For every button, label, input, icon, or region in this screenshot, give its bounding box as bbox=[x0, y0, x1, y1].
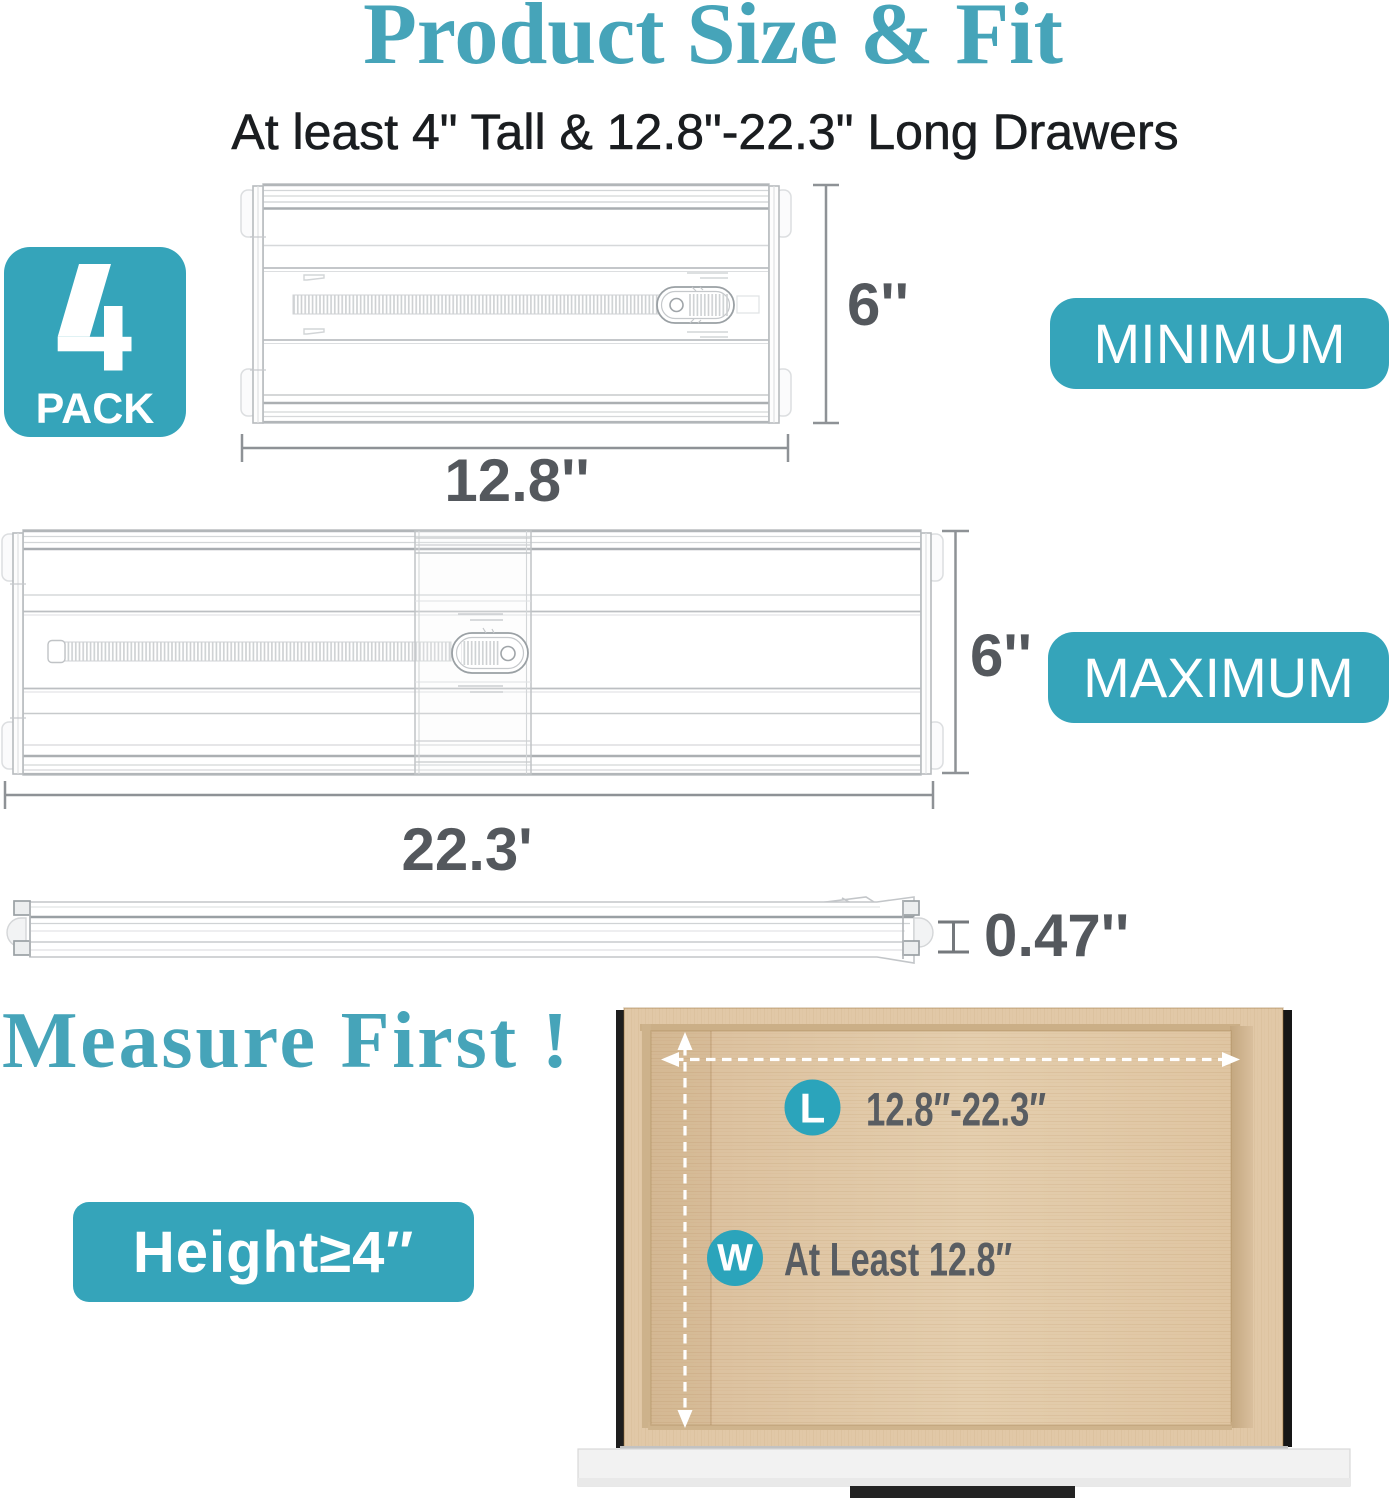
svg-text:12.8″-22.3″: 12.8″-22.3″ bbox=[866, 1083, 1046, 1136]
svg-text:W: W bbox=[717, 1238, 753, 1280]
svg-text:At Least 12.8″: At Least 12.8″ bbox=[784, 1233, 1012, 1286]
svg-text:L: L bbox=[800, 1085, 826, 1132]
svg-text:PACK: PACK bbox=[36, 385, 155, 433]
